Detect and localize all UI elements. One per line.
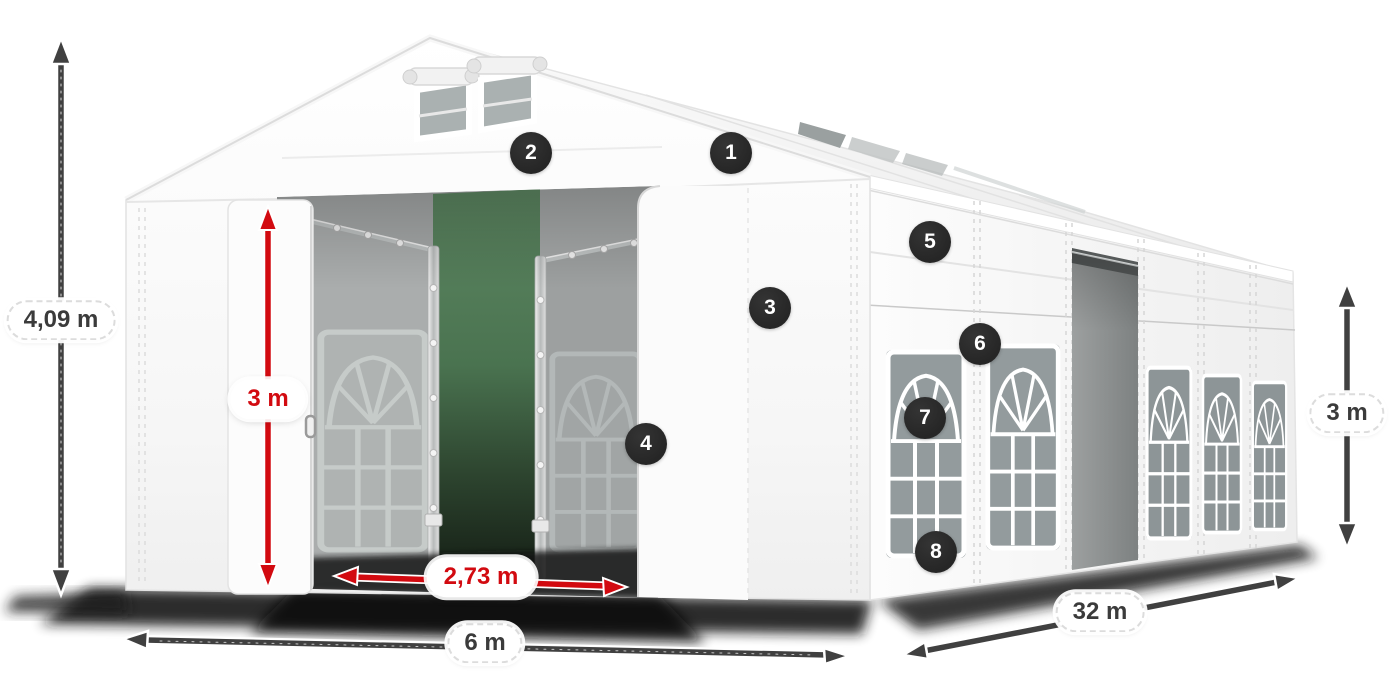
open-side-section [1072, 248, 1138, 570]
callout-hotspot-5[interactable]: 5 [909, 221, 951, 263]
callout-hotspot-1[interactable]: 1 [710, 132, 752, 174]
arched-window [986, 344, 1060, 550]
callout-hotspot-8[interactable]: 8 [915, 531, 957, 573]
dimension-label-entrance-height: 3 m [230, 379, 305, 419]
dimension-label-front-width: 6 m [447, 623, 522, 663]
entrance-interior [277, 186, 658, 598]
vent-window [467, 57, 547, 130]
tent-illustration [0, 0, 1400, 700]
dimension-label-side-length: 32 m [1056, 592, 1145, 632]
callout-hotspot-4[interactable]: 4 [625, 423, 667, 465]
callout-hotspot-2[interactable]: 2 [510, 132, 552, 174]
callout-hotspot-3[interactable]: 3 [749, 287, 791, 329]
dimension-label-entrance-width: 2,73 m [427, 557, 536, 597]
tent-diagram: 4,09 m 3 m 2,73 m 6 m 32 m 3 m 1 2 3 4 5… [0, 0, 1400, 700]
vent-roller [408, 68, 474, 85]
arched-window [1146, 366, 1192, 540]
vent-roller [472, 57, 542, 74]
arched-window [1202, 374, 1242, 534]
callout-hotspot-6[interactable]: 6 [959, 323, 1001, 365]
arched-window [886, 350, 966, 558]
dimension-label-side-height: 3 m [1309, 393, 1384, 433]
vent-window [403, 68, 479, 139]
right-door [638, 186, 748, 600]
dimension-label-total-height: 4,09 m [7, 300, 116, 340]
arched-window [1252, 381, 1287, 531]
door-handle [306, 416, 315, 437]
callout-hotspot-7[interactable]: 7 [904, 397, 946, 439]
